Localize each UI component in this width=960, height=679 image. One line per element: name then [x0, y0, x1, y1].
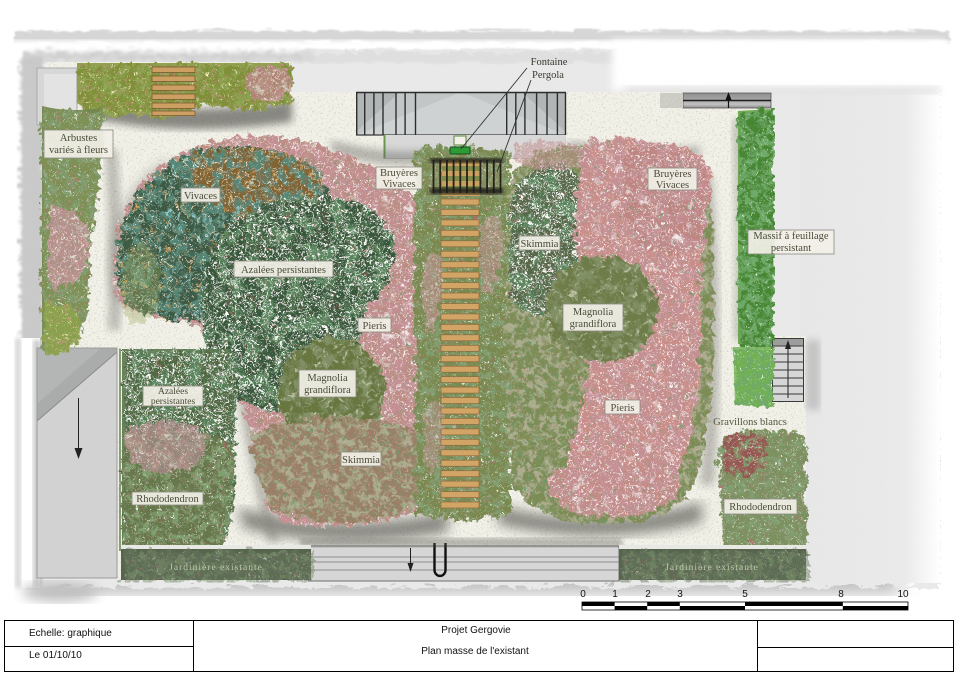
- svg-text:Pieris: Pieris: [363, 321, 387, 332]
- svg-text:grandiflora: grandiflora: [304, 385, 351, 396]
- svg-text:Pergola: Pergola: [532, 70, 564, 81]
- svg-text:10: 10: [897, 589, 909, 600]
- svg-text:Fontaine: Fontaine: [531, 57, 568, 68]
- svg-text:Jardinière existante: Jardinière existante: [169, 563, 263, 573]
- svg-text:3: 3: [677, 589, 683, 600]
- svg-text:Gravillons blancs: Gravillons blancs: [713, 417, 787, 428]
- svg-text:Rhododendron: Rhododendron: [136, 494, 199, 505]
- svg-text:Skimmia: Skimmia: [342, 455, 380, 466]
- svg-text:Azalées persistantes: Azalées persistantes: [241, 265, 326, 276]
- svg-text:0: 0: [580, 589, 586, 600]
- svg-text:Arbustes: Arbustes: [60, 133, 97, 144]
- svg-text:Magnolia: Magnolia: [307, 373, 348, 384]
- svg-text:Skimmia: Skimmia: [521, 239, 559, 250]
- svg-text:persistantes: persistantes: [151, 397, 196, 407]
- svg-text:Azalées: Azalées: [158, 387, 188, 397]
- svg-text:Le 01/10/10: Le 01/10/10: [29, 650, 82, 661]
- svg-text:5: 5: [742, 589, 748, 600]
- svg-text:Echelle: graphique: Echelle: graphique: [29, 628, 112, 639]
- svg-text:Bruyères: Bruyères: [654, 169, 692, 180]
- svg-text:Projet Gergovie: Projet Gergovie: [441, 625, 511, 636]
- svg-text:Pieris: Pieris: [611, 403, 635, 414]
- svg-text:Massif à feuillage: Massif à feuillage: [753, 231, 829, 242]
- svg-text:8: 8: [838, 589, 844, 600]
- svg-text:Plan masse de l'existant: Plan masse de l'existant: [421, 646, 529, 657]
- svg-text:persistant: persistant: [771, 243, 811, 254]
- svg-text:grandiflora: grandiflora: [570, 319, 617, 330]
- svg-text:Rhododendron: Rhododendron: [729, 502, 792, 513]
- svg-text:Vivaces: Vivaces: [184, 191, 217, 202]
- svg-text:2: 2: [645, 589, 651, 600]
- svg-text:Magnolia: Magnolia: [573, 307, 614, 318]
- svg-text:Vivaces: Vivaces: [382, 179, 415, 190]
- svg-text:1: 1: [612, 589, 618, 600]
- svg-text:Bruyères: Bruyères: [380, 168, 418, 179]
- svg-text:Vivaces: Vivaces: [656, 180, 689, 191]
- svg-text:Jardinière existante: Jardinière existante: [665, 563, 759, 573]
- svg-text:variés à fleurs: variés à fleurs: [49, 145, 108, 156]
